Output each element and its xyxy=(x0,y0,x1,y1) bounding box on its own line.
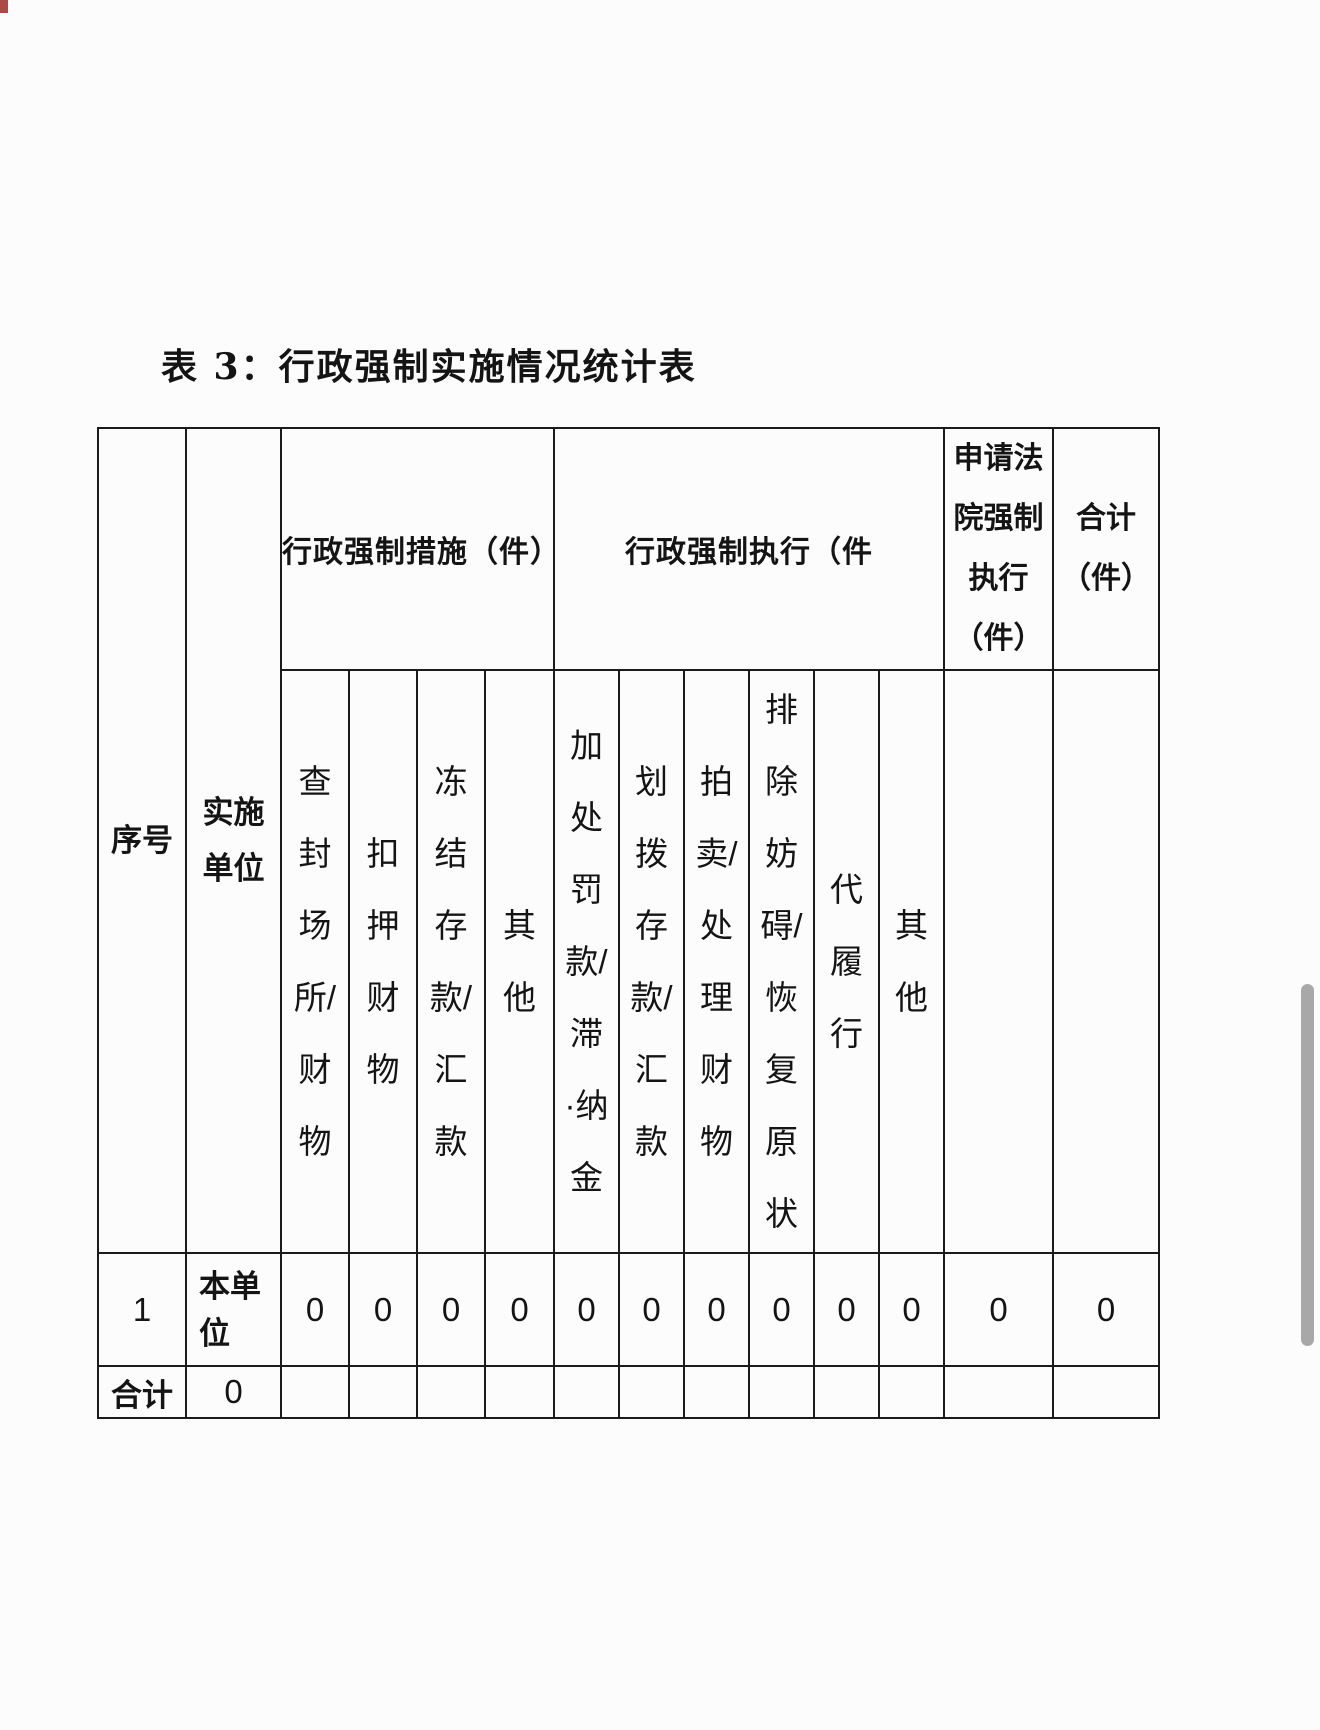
subheader-freeze-deposits: 冻 结 存 款/ 汇 款 xyxy=(417,670,485,1253)
header-row-groups: 序号 实施 单位 行政强制措施（件） 行政强制执行（件 申请法 院强制 执行 （… xyxy=(98,428,1159,670)
empty-cell xyxy=(417,1366,485,1418)
subheader-other-measures: 其 他 xyxy=(485,670,554,1253)
cell-value: 0 xyxy=(349,1253,417,1366)
footer-unit-total: 0 xyxy=(186,1366,281,1418)
empty-cell xyxy=(554,1366,619,1418)
header-court-enforcement: 申请法 院强制 执行 （件） xyxy=(944,428,1053,670)
cell-value: 0 xyxy=(281,1253,349,1366)
cell-value: 0 xyxy=(749,1253,814,1366)
subheader-auction-property: 拍 卖/ 处 理 财 物 xyxy=(684,670,749,1253)
cell-serial: 1 xyxy=(98,1253,186,1366)
cell-value: 0 xyxy=(814,1253,879,1366)
subheader-transfer-deposits: 划 拨 存 款/ 汇 款 xyxy=(619,670,684,1253)
cell-court-value: 0 xyxy=(944,1253,1053,1366)
empty-cell xyxy=(349,1366,417,1418)
cell-value: 0 xyxy=(879,1253,944,1366)
empty-cell xyxy=(879,1366,944,1418)
table-row: 1 本单 位 0 0 0 0 0 0 0 0 0 0 0 0 xyxy=(98,1253,1159,1366)
cell-value: 0 xyxy=(554,1253,619,1366)
cell-total-value: 0 xyxy=(1053,1253,1159,1366)
cell-value: 0 xyxy=(417,1253,485,1366)
footer-label: 合计 xyxy=(98,1366,186,1418)
page-title: 表 3：行政强制实施情况统计表 xyxy=(161,338,697,390)
empty-cell-under-total xyxy=(1053,670,1159,1253)
cell-value: 0 xyxy=(485,1253,554,1366)
scan-corner-artifact xyxy=(0,0,8,13)
empty-cell xyxy=(944,1366,1053,1418)
vertical-scrollbar-thumb[interactable] xyxy=(1301,984,1314,1346)
empty-cell-under-court xyxy=(944,670,1053,1253)
header-total: 合计 （件） xyxy=(1053,428,1159,670)
empty-cell xyxy=(1053,1366,1159,1418)
cell-unit: 本单 位 xyxy=(186,1253,281,1366)
empty-cell xyxy=(749,1366,814,1418)
subheader-seal-premises-property: 查 封 场 所/ 财 物 xyxy=(281,670,349,1253)
subheader-other-enforcement: 其 他 xyxy=(879,670,944,1253)
header-implementing-unit: 实施 单位 xyxy=(186,428,281,1253)
subheader-substitute-performance: 代 履 行 xyxy=(814,670,879,1253)
empty-cell xyxy=(684,1366,749,1418)
subheader-additional-fines: 加 处 罚 款/ 滞 ·纳 金 xyxy=(554,670,619,1253)
group-header-enforcement: 行政强制执行（件 xyxy=(554,428,944,670)
subheader-remove-obstruction: 排 除 妨 碍/ 恢 复 原 状 xyxy=(749,670,814,1253)
empty-cell xyxy=(281,1366,349,1418)
cell-value: 0 xyxy=(684,1253,749,1366)
empty-cell xyxy=(814,1366,879,1418)
cell-value: 0 xyxy=(619,1253,684,1366)
empty-cell xyxy=(485,1366,554,1418)
header-serial: 序号 xyxy=(98,428,186,1253)
table-footer-row: 合计 0 xyxy=(98,1366,1159,1418)
subheader-seize-property: 扣 押 财 物 xyxy=(349,670,417,1253)
group-header-coercive-measures: 行政强制措施（件） xyxy=(281,428,554,670)
enforcement-statistics-table: 序号 实施 单位 行政强制措施（件） 行政强制执行（件 申请法 院强制 执行 （… xyxy=(97,427,1160,1419)
empty-cell xyxy=(619,1366,684,1418)
